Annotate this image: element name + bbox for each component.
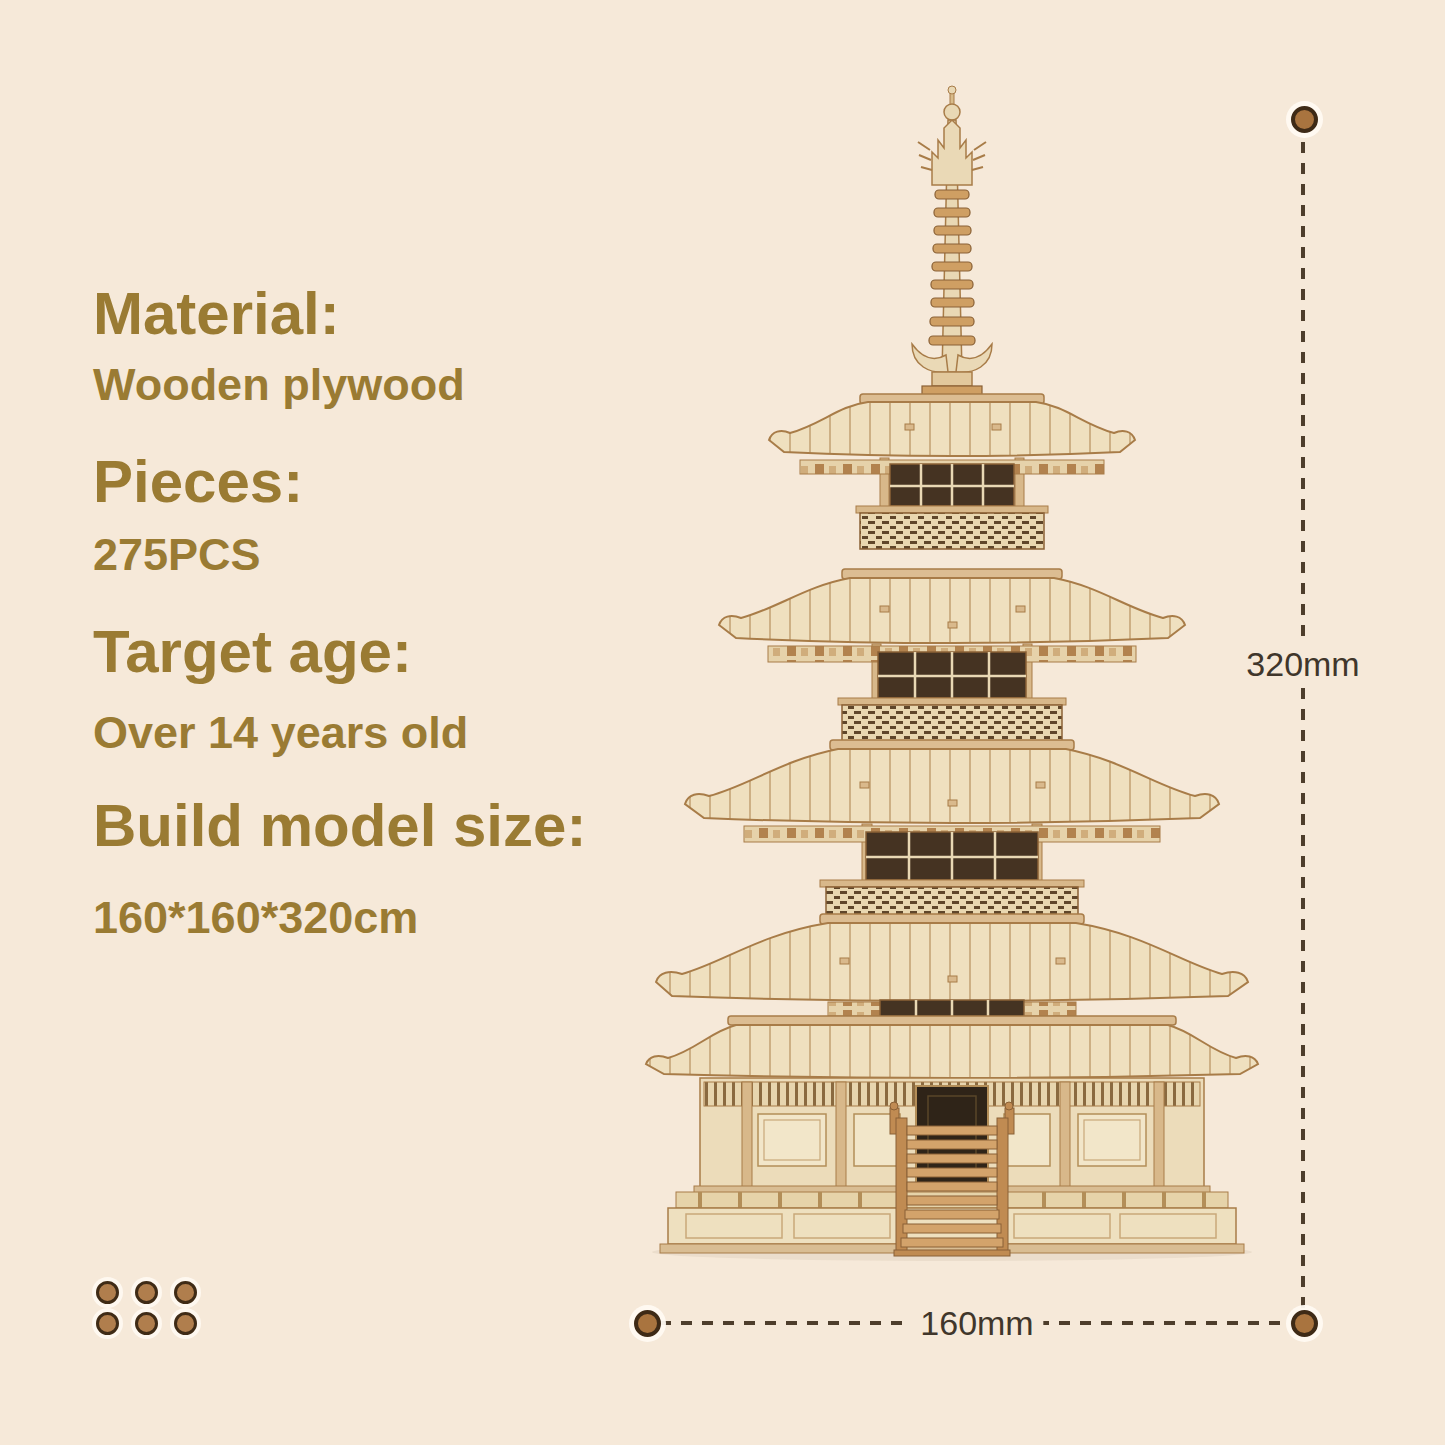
pagoda-roof-2 <box>656 914 1248 1001</box>
pagoda-roof-3 <box>685 740 1219 823</box>
height-dimension-label: 320mm <box>1236 643 1369 685</box>
pagoda-story-5 <box>800 458 1104 549</box>
decorative-dot <box>174 1312 197 1335</box>
decorative-dot <box>174 1281 197 1304</box>
spec-value-material: Wooden plywood <box>93 362 465 407</box>
spec-heading-target-age: Target age: <box>93 622 412 682</box>
width-dimension-label: 160mm <box>910 1302 1043 1344</box>
width-line-left-dot <box>634 1310 661 1337</box>
spec-heading-build-size: Build model size: <box>93 796 586 856</box>
product-infographic: Material: Wooden plywood Pieces: 275PCS … <box>0 0 1445 1445</box>
decorative-dots-grid <box>96 1281 197 1335</box>
decorative-dot <box>135 1312 158 1335</box>
pagoda-spire <box>912 86 992 398</box>
height-line-top-dot <box>1291 106 1318 133</box>
spec-value-target-age: Over 14 years old <box>93 710 468 755</box>
spec-heading-material: Material: <box>93 284 340 344</box>
pagoda-roof-4 <box>719 569 1185 643</box>
pagoda-story-3 <box>744 824 1160 921</box>
pagoda-illustration <box>600 80 1320 1270</box>
spec-value-build-size: 160*160*320cm <box>93 895 418 940</box>
pagoda-roof-1 <box>646 1016 1258 1078</box>
pagoda-story-4 <box>768 644 1136 743</box>
decorative-dot <box>135 1281 158 1304</box>
decorative-dot <box>96 1312 119 1335</box>
decorative-dot <box>96 1281 119 1304</box>
corner-dot <box>1291 1310 1318 1337</box>
spec-heading-pieces: Pieces: <box>93 452 303 512</box>
spec-value-pieces: 275PCS <box>93 532 261 577</box>
pagoda-roof-5 <box>769 394 1135 456</box>
height-dimension-line <box>1301 142 1305 1314</box>
